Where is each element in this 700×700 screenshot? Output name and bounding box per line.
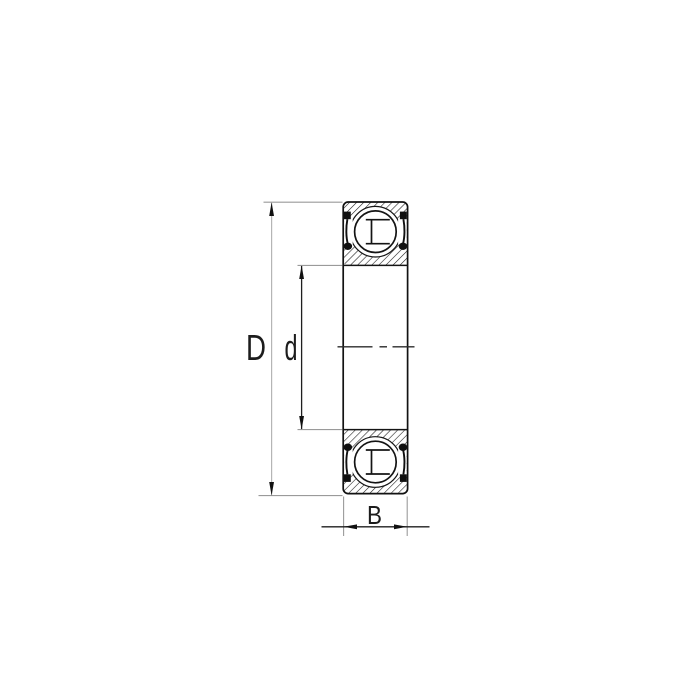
bottom-ball: [355, 441, 397, 483]
dimension-inner-diameter: d: [285, 265, 343, 429]
dimension-width: B: [322, 497, 430, 537]
seal-foot: [399, 243, 408, 250]
arrow-down-icon: [299, 416, 304, 430]
label-width: B: [367, 500, 382, 530]
top-ball: [355, 211, 397, 253]
seal-foot: [399, 444, 408, 451]
arrow-right-icon: [394, 524, 407, 529]
seal-anchor: [344, 212, 351, 220]
bearing-drawing-canvas: D d B: [0, 0, 700, 700]
bearing-body: [338, 202, 415, 494]
seal-foot: [344, 243, 353, 250]
seal-anchor: [400, 212, 407, 220]
seal-anchor: [400, 474, 407, 482]
seal-foot: [344, 444, 353, 451]
arrow-up-icon: [269, 202, 274, 216]
arrow-down-icon: [269, 482, 274, 496]
label-outer-diameter: D: [246, 327, 266, 368]
arrow-up-icon: [299, 265, 304, 279]
bearing-technical-drawing: D d B: [0, 0, 700, 700]
label-inner-diameter: d: [285, 327, 298, 368]
arrow-left-icon: [344, 524, 357, 529]
seal-anchor: [344, 474, 351, 482]
